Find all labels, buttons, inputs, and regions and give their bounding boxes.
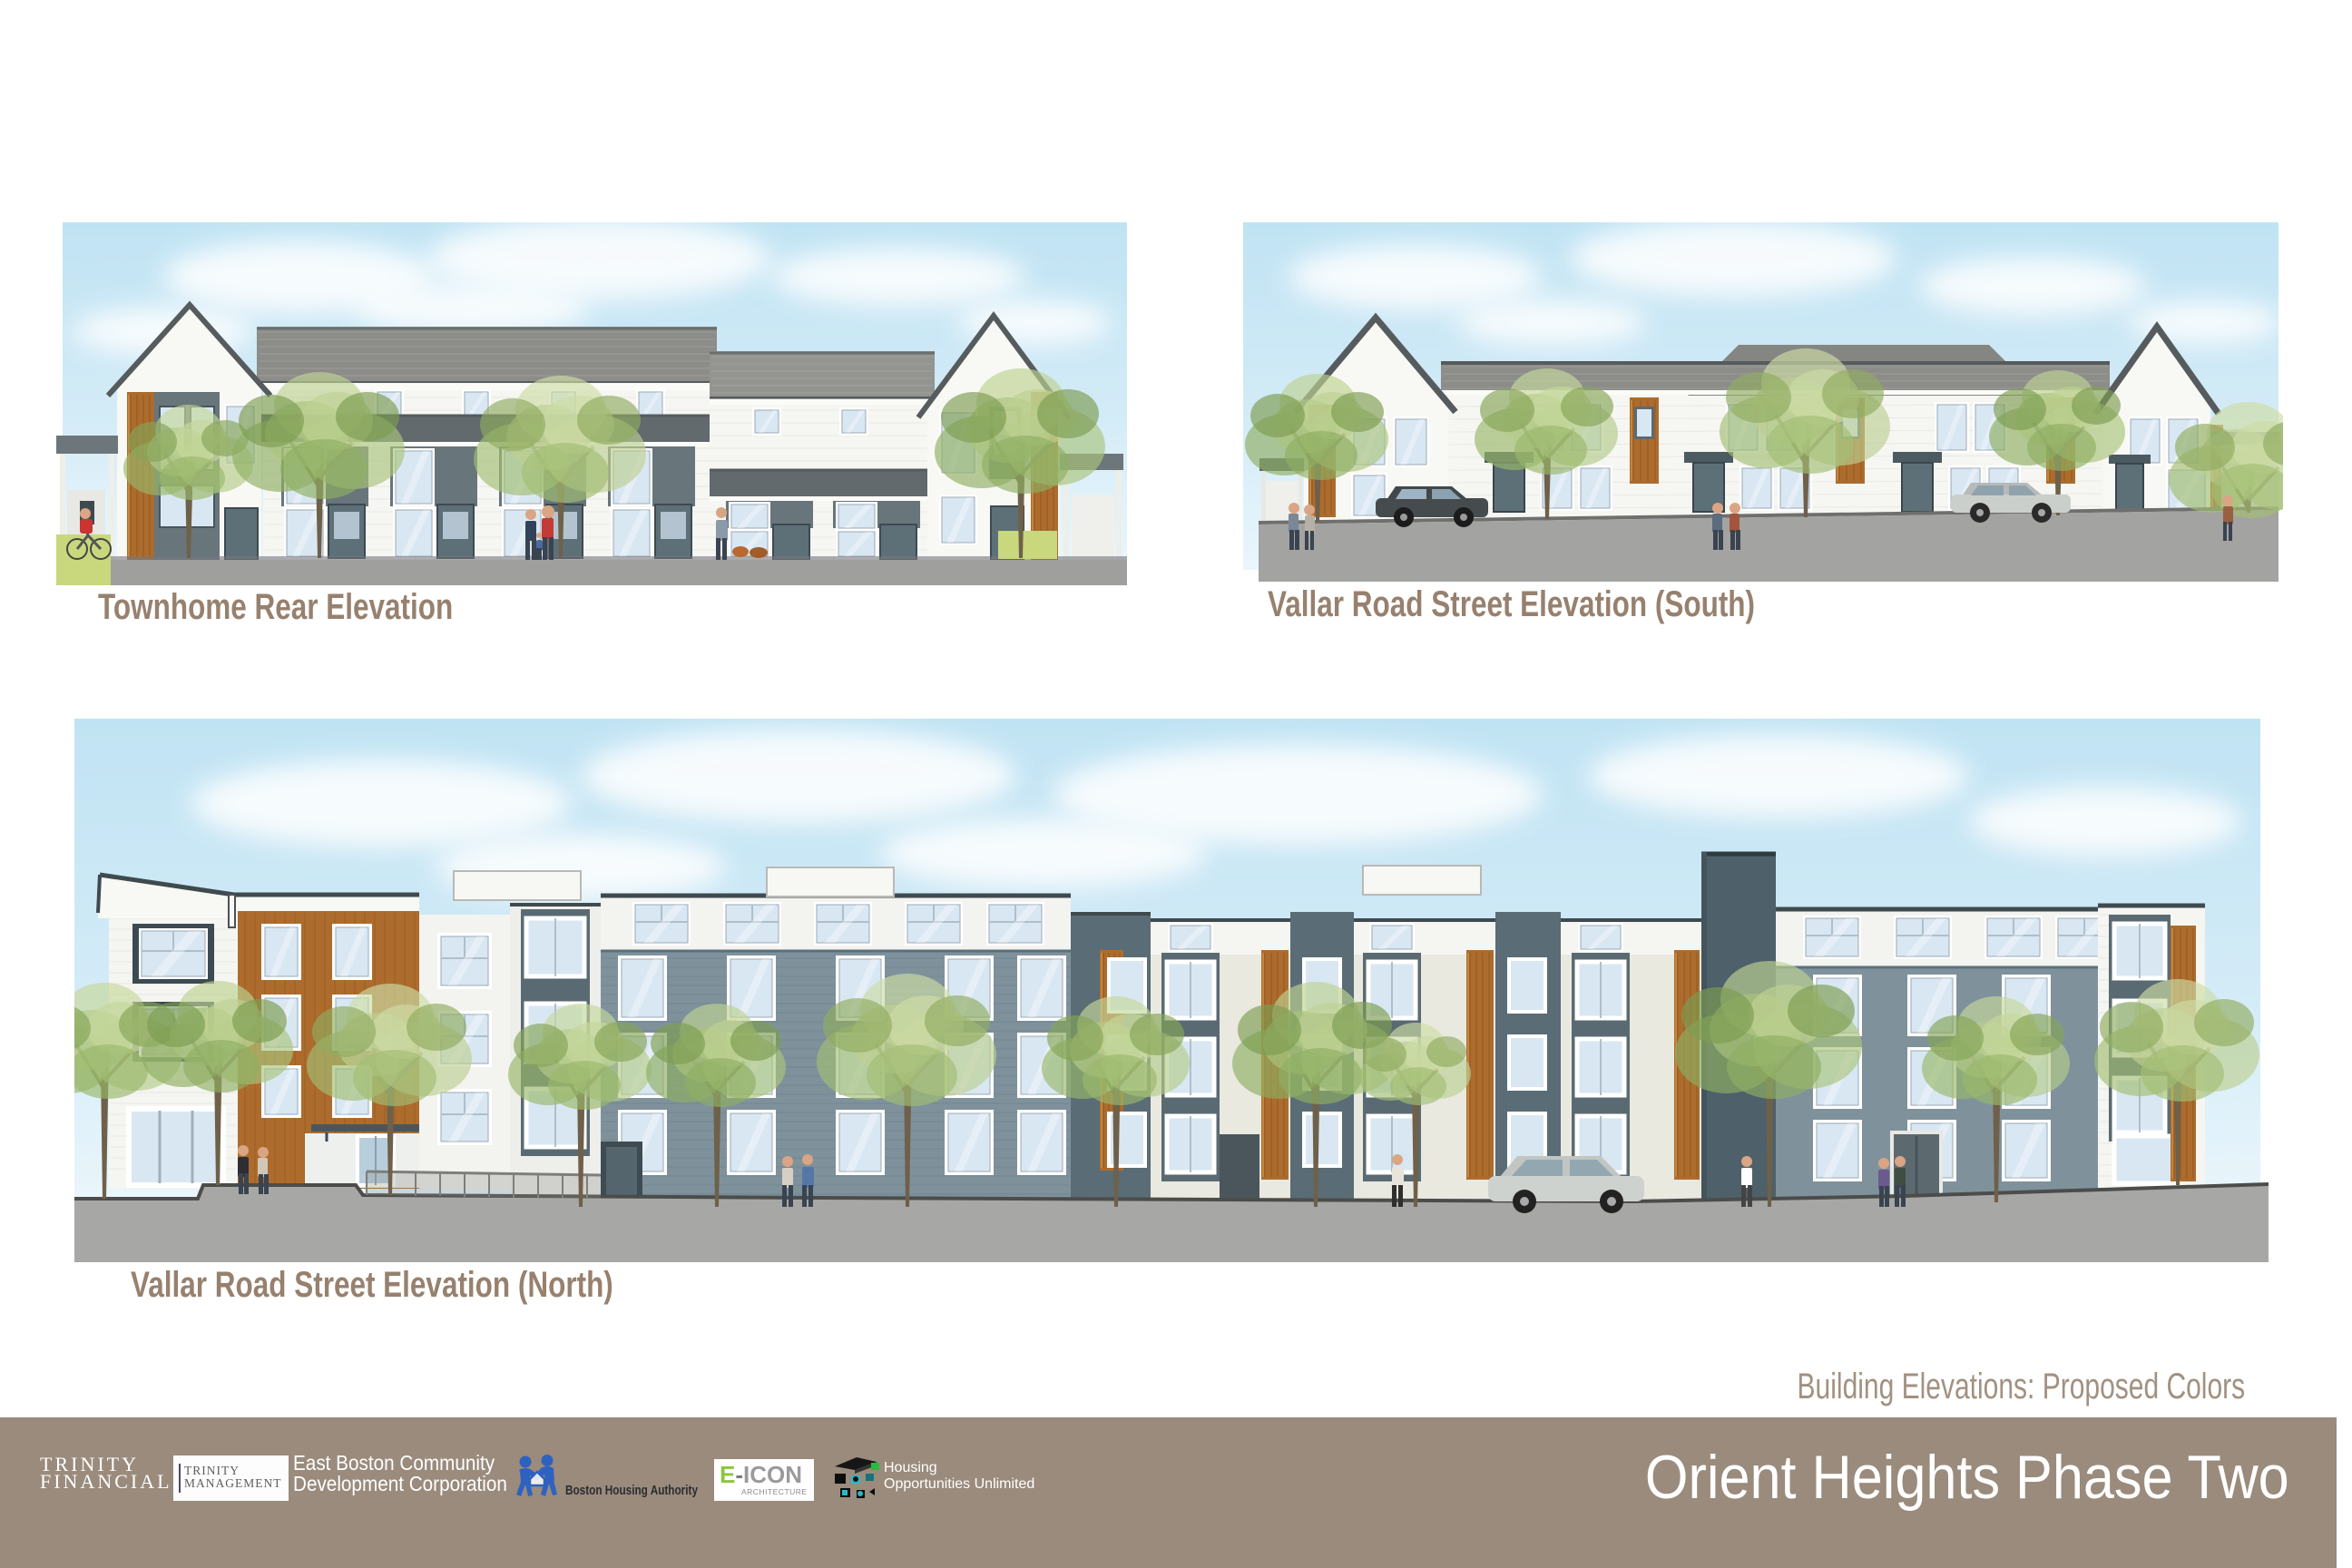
svg-text:Boston Housing Authority: Boston Housing Authority	[565, 1483, 699, 1498]
